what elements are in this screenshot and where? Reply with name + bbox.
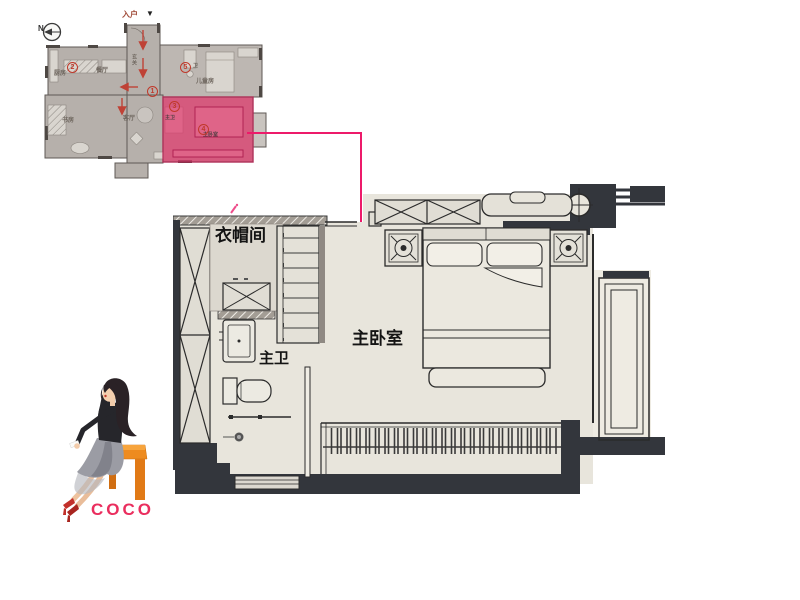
overview-marker-1: 1 — [147, 86, 158, 97]
overview-label-study: 书房 — [62, 118, 74, 124]
overview-label-hall: 玄关 — [131, 54, 136, 66]
pink-tick-mark — [231, 204, 238, 213]
compass-icon — [44, 24, 61, 41]
logo-coco: COCO — [91, 500, 154, 520]
overview-marker-2: 2 — [67, 62, 78, 73]
mascot-skirt — [74, 438, 123, 494]
overview-label-living: 客厅 — [123, 116, 135, 122]
nightstand-left — [385, 230, 422, 266]
compass-north-label: N — [38, 25, 44, 33]
overview-label-dining: 餐厅 — [96, 68, 108, 74]
overview-marker-5: 5 — [180, 62, 191, 73]
bathroom-window — [235, 476, 299, 489]
overview-label-kitchen: 厨房 — [54, 71, 66, 77]
label-cloakroom: 衣帽间 — [215, 227, 266, 244]
canvas: N 入户 ▼ 厨房 餐厅 玄关 书房 客厅 儿童房 卫 主卫 主卧室 1 2 3… — [0, 0, 800, 600]
master-suite-floorplan: 衣帽间 主卫 主卧室 — [173, 180, 665, 510]
overview-entrance-label: 入户 — [122, 11, 138, 19]
top-cabinet-rounded — [482, 192, 572, 216]
overview-marker-3: 3 — [169, 101, 180, 112]
entrance-arrow-icon: ▼ — [146, 10, 154, 18]
overview-label-master-bath: 主卫 — [165, 116, 175, 121]
nightstand-right — [550, 230, 587, 266]
bed — [423, 228, 550, 387]
label-master-bath: 主卫 — [259, 351, 289, 366]
overview-floorplan: N 入户 ▼ 厨房 餐厅 玄关 书房 客厅 儿童房 卫 主卫 主卧室 1 2 3… — [38, 8, 273, 183]
overview-label-bath: 卫 — [193, 64, 198, 69]
overview-label-kids-room: 儿童房 — [196, 79, 214, 85]
left-wardrobe — [180, 228, 210, 443]
bedhead-cabinet — [369, 200, 480, 226]
highlight-leader-line-horizontal — [247, 132, 361, 134]
toilet — [223, 378, 271, 404]
shelving-unit — [277, 226, 325, 343]
overview-marker-4: 4 — [198, 124, 209, 135]
label-master-bedroom: 主卧室 — [352, 330, 403, 347]
bathroom-sink — [219, 320, 255, 362]
